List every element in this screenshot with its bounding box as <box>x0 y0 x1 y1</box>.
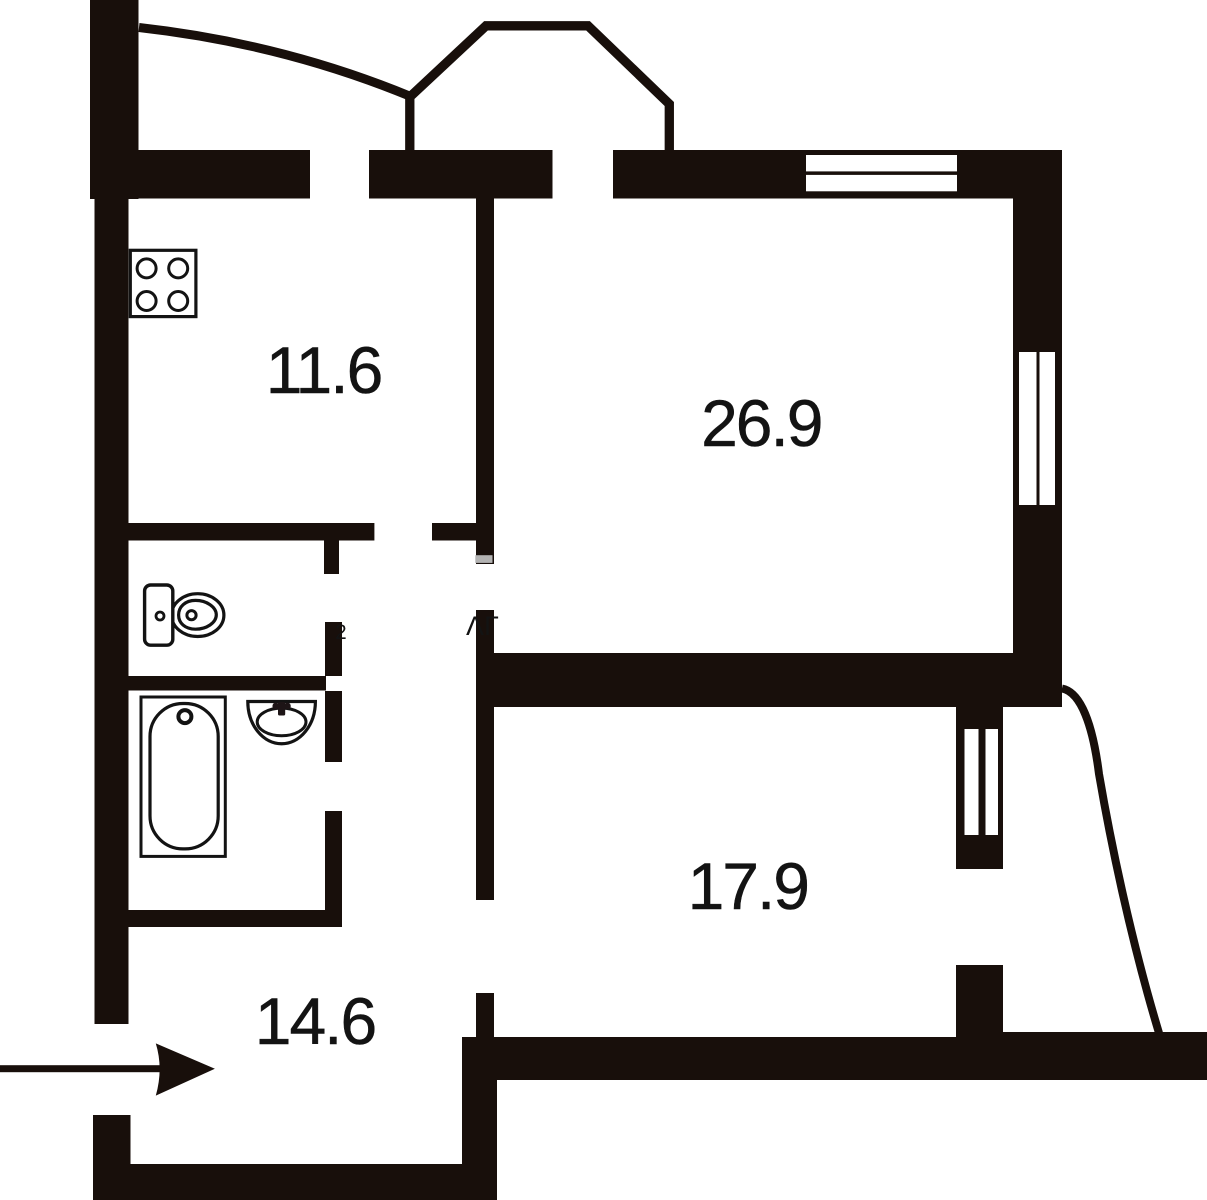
svg-text:26.9: 26.9 <box>701 386 821 460</box>
svg-text:17.9: 17.9 <box>688 849 808 923</box>
svg-text:ΛΓ: ΛΓ <box>466 611 499 641</box>
svg-text:2: 2 <box>335 621 347 644</box>
svg-text:11.6: 11.6 <box>266 333 382 407</box>
svg-text:14.6: 14.6 <box>255 984 375 1058</box>
